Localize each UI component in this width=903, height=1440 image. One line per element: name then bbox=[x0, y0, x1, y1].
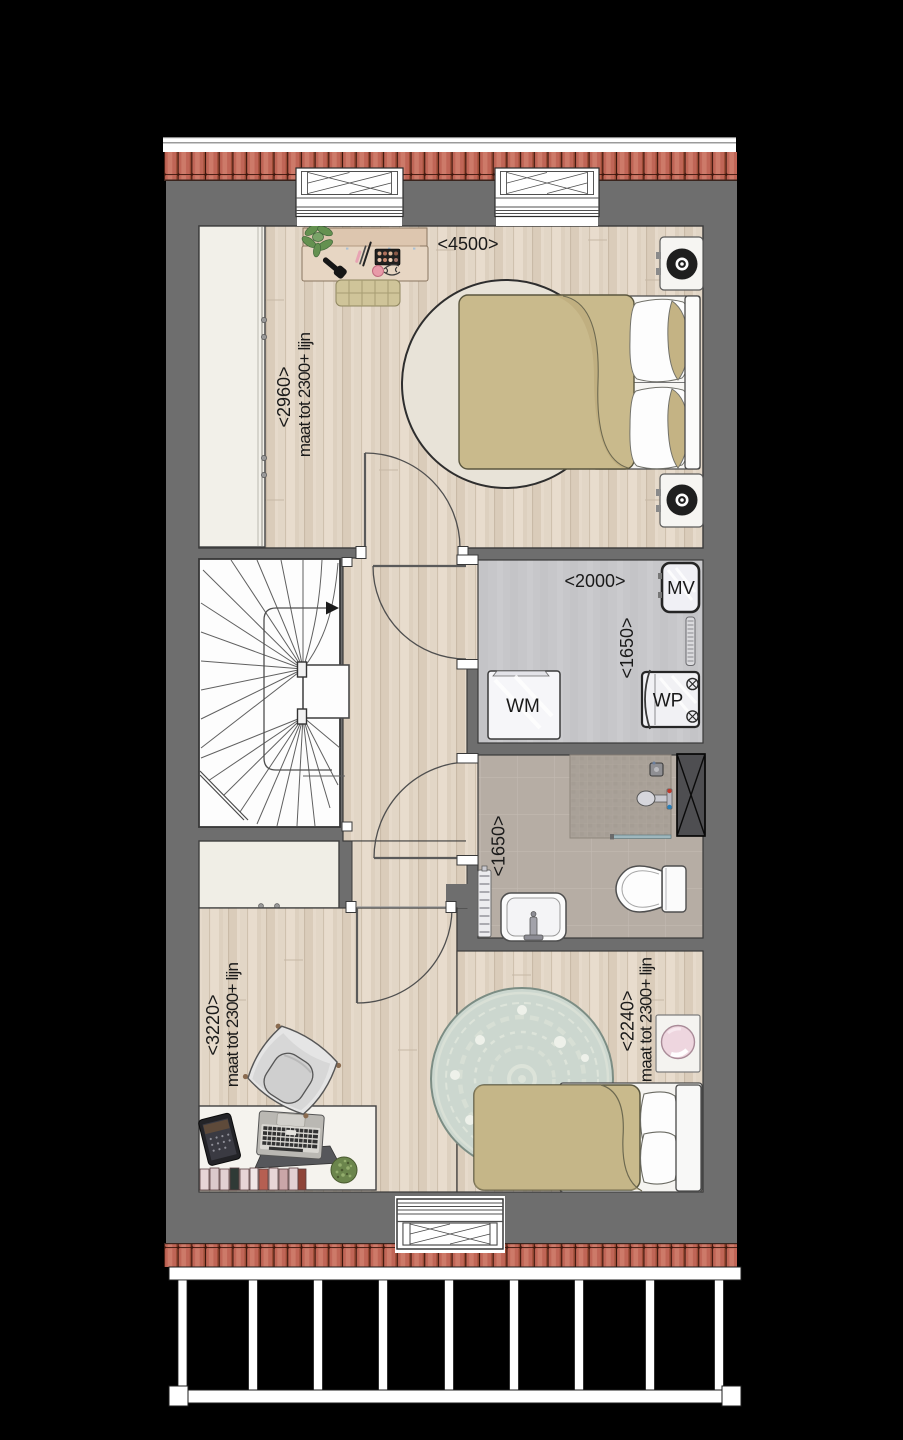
svg-text:<1650>: <1650> bbox=[489, 815, 509, 876]
svg-text:maat tot 2300+ lijn: maat tot 2300+ lijn bbox=[223, 963, 242, 1088]
svg-text:maat tot 2300+ lijn: maat tot 2300+ lijn bbox=[637, 958, 656, 1083]
svg-text:<2000>: <2000> bbox=[564, 571, 625, 591]
svg-text:WP: WP bbox=[653, 691, 684, 712]
svg-text:<4500>: <4500> bbox=[437, 234, 498, 254]
svg-text:maat tot 2300+ lijn: maat tot 2300+ lijn bbox=[295, 333, 314, 458]
svg-text:<2960>: <2960> bbox=[274, 366, 294, 427]
svg-text:MV: MV bbox=[667, 577, 695, 598]
svg-text:<1650>: <1650> bbox=[617, 617, 637, 678]
svg-text:<3220>: <3220> bbox=[203, 994, 223, 1055]
svg-text:<2240>: <2240> bbox=[618, 990, 638, 1051]
svg-text:WM: WM bbox=[506, 696, 540, 717]
